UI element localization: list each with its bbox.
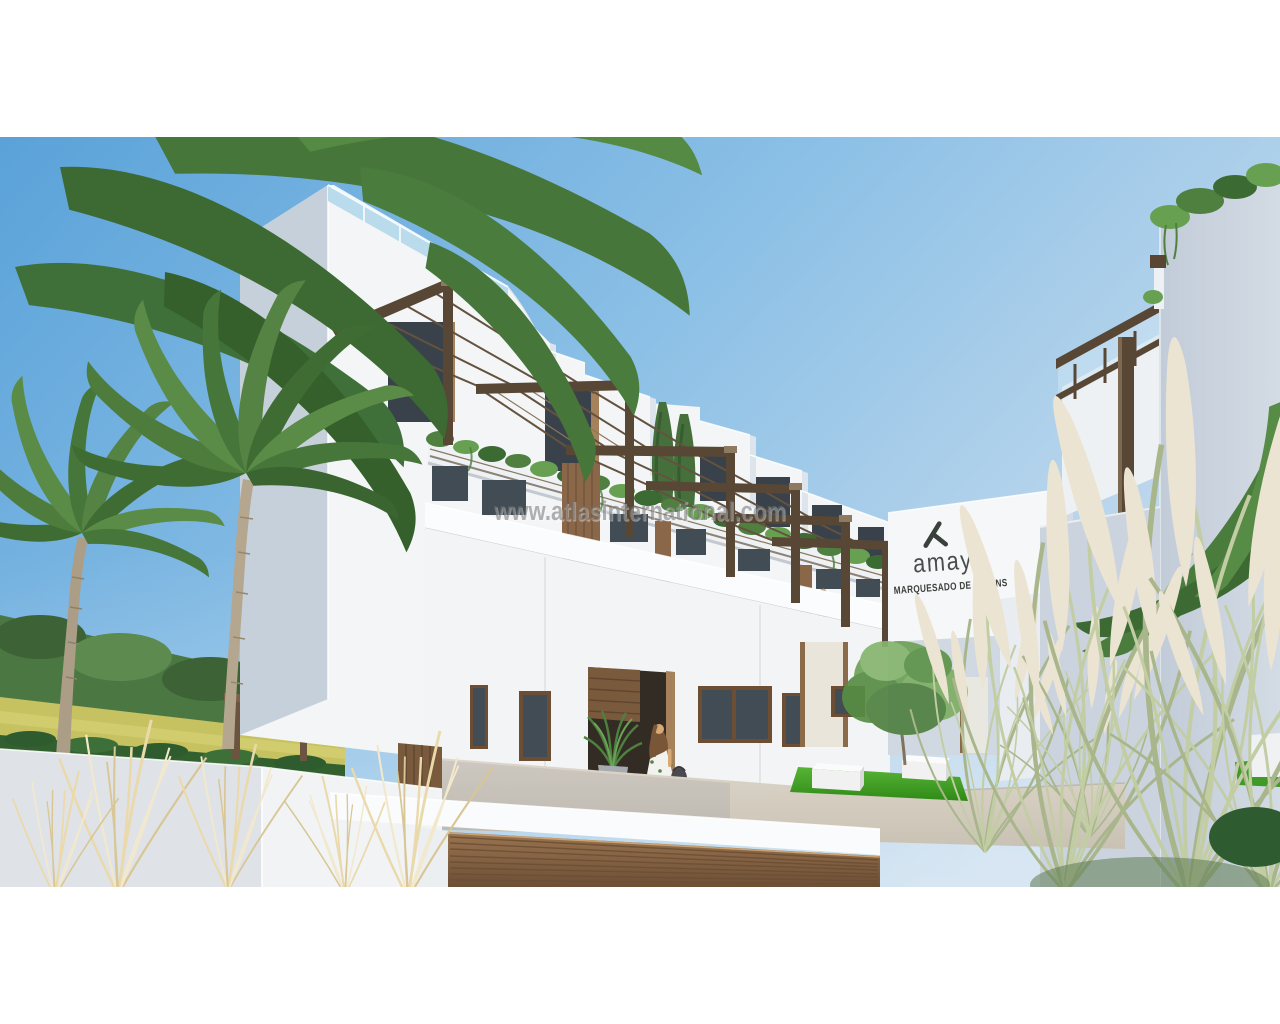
watermark-text: www.atlasinternational.com www.atlasinte…: [493, 496, 787, 528]
svg-text:www.atlasinternational.com: www.atlasinternational.com: [493, 496, 786, 526]
ground-window-3: [698, 686, 772, 743]
bench: [812, 763, 864, 791]
amay-brand-text: amay: [912, 544, 974, 578]
page: amay MARQUESADO DE MOLINS: [0, 0, 1280, 1024]
ground-window-1: [470, 685, 488, 749]
property-photo: amay MARQUESADO DE MOLINS: [0, 137, 1280, 887]
ground-window-2: [519, 691, 551, 761]
